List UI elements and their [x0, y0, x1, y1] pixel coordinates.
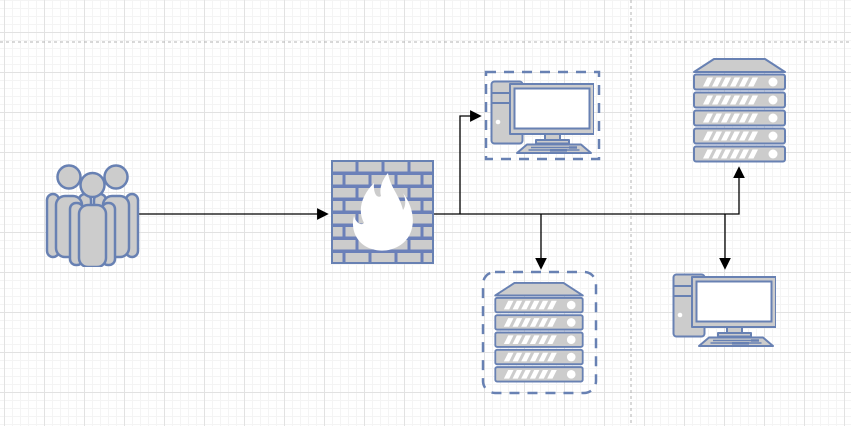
firewall-brick-flame-icon [332, 161, 433, 263]
firewall-node[interactable] [332, 161, 433, 263]
desktop-computer-icon [674, 275, 777, 347]
pc-top-node[interactable] [486, 72, 599, 159]
server-stack-icon [495, 283, 583, 382]
desktop-computer-icon [492, 82, 595, 154]
diagram-layer[interactable] [0, 0, 851, 426]
users-node[interactable] [47, 166, 138, 268]
drawing-canvas[interactable] [0, 0, 851, 426]
connector-firewall-pc-top[interactable] [460, 116, 480, 214]
pc-bottom-node[interactable] [674, 275, 777, 347]
connector-firewall-server-right[interactable] [434, 168, 739, 214]
server-bottom-node[interactable] [483, 272, 596, 393]
server-stack-icon [694, 59, 785, 162]
people-group-icon [47, 166, 138, 268]
server-right-node[interactable] [694, 59, 785, 162]
